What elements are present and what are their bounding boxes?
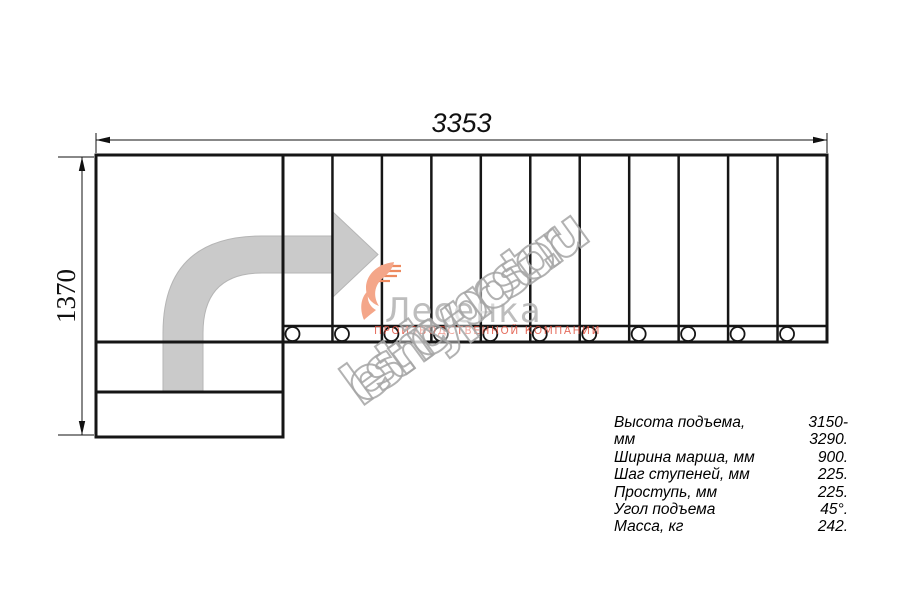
spec-row-tread-depth: Проступь, мм 225. <box>614 484 848 501</box>
spec-table: Высота подъема, мм 3150-3290. Ширина мар… <box>614 414 848 536</box>
spec-value: 900. <box>818 449 848 466</box>
tread-bolt-circle <box>681 327 695 341</box>
spec-value: 225. <box>818 466 848 483</box>
tread-bolt-circle <box>632 327 646 341</box>
staircase-drawing-page: 3353 1370 Лесенка производственной компа… <box>0 0 900 600</box>
spec-label: Масса, кг <box>614 518 683 535</box>
spec-row-height: Высота подъема, мм 3150-3290. <box>614 414 848 449</box>
tread-bolt-circle <box>731 327 745 341</box>
arrowhead-down <box>79 421 85 435</box>
spec-label: Высота подъема, мм <box>614 414 770 449</box>
spec-value: 3150-3290. <box>770 414 848 449</box>
spec-value: 45°. <box>820 501 848 518</box>
spec-label: Угол подъема <box>614 501 715 518</box>
tread-bolt-circle <box>335 327 349 341</box>
spec-label: Ширина марша, мм <box>614 449 755 466</box>
dimension-width-label: 3353 <box>96 108 827 139</box>
landing-lower-step-2 <box>96 392 283 437</box>
spec-row-mass: Масса, кг 242. <box>614 518 848 535</box>
dimension-height-label: 1370 <box>51 216 81 376</box>
spec-value: 242. <box>818 518 848 535</box>
spec-row-angle: Угол подъема 45°. <box>614 501 848 518</box>
tread-bolt-circle <box>780 327 794 341</box>
arrowhead-up <box>79 157 85 171</box>
spec-value: 225. <box>818 484 848 501</box>
spec-row-march-width: Ширина марша, мм 900. <box>614 449 848 466</box>
spec-label: Проступь, мм <box>614 484 717 501</box>
spec-row-step-pitch: Шаг ступеней, мм 225. <box>614 466 848 483</box>
tread-bolt-circle <box>286 327 300 341</box>
spec-label: Шаг ступеней, мм <box>614 466 750 483</box>
